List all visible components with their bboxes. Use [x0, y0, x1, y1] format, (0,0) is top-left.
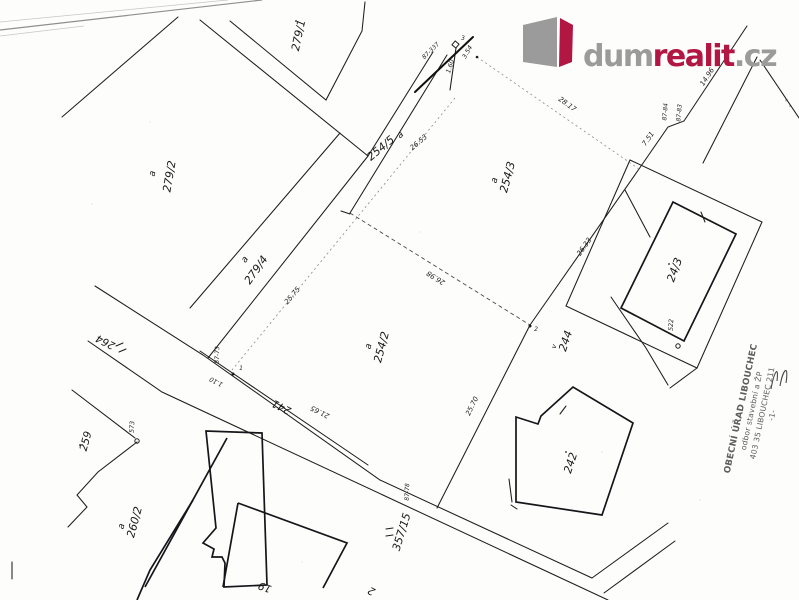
parcel-boundaries: [12, 2, 799, 593]
parcel-label-357-15: 357/15: [390, 512, 414, 553]
logo-wordmark: dumrealit.cz: [583, 39, 777, 74]
survey-point-87-83: 87-83: [675, 104, 684, 122]
parcel-label-279-2: 279/2: [160, 160, 178, 193]
measurement-21-65: 21.65: [309, 403, 331, 419]
parcel-label-279-1: 279/1: [289, 18, 308, 52]
parcel-label-264: 264: [94, 332, 117, 352]
survey-point-87-73: 87-73: [214, 346, 222, 364]
land-use-marker: a: [395, 130, 406, 141]
point-number-1: 1: [239, 365, 243, 372]
parcel-label-260-2: 260/2: [124, 505, 145, 539]
boundary-tick: [560, 406, 566, 414]
survey-dot: [232, 373, 235, 376]
boundary-tick: [511, 505, 517, 509]
measurement-25-70: 25.70: [464, 395, 480, 417]
boundary-tick: [341, 211, 350, 214]
logo-text-dum: dum: [583, 39, 653, 74]
roads: [88, 286, 608, 600]
measurement-26-98: 26.98: [425, 269, 447, 287]
measurement-1-10: 1.10: [208, 375, 224, 388]
survey-square-marker: [452, 41, 459, 48]
survey-circle-522: [676, 344, 680, 348]
point-label-573: 573: [129, 421, 137, 433]
survey-dot: [476, 56, 479, 59]
parcel-label-241: 241: [270, 397, 293, 417]
building-label-2: 2: [366, 584, 378, 598]
land-use-marker: a: [364, 343, 375, 351]
measure-lines: [232, 57, 639, 370]
parcel-label-254-2: 254/2: [371, 330, 392, 364]
cadastral-map: 279/1 a 279/2 a 279/4 254/5 a a 254/3 a …: [0, 0, 799, 600]
parcel-label-244: 244: [556, 329, 575, 353]
logo-building-icon-side: [559, 18, 573, 67]
land-use-marker: a: [148, 170, 159, 177]
cadastral-map-page: 279/1 a 279/2 a 279/4 254/5 a a 254/3 a …: [0, 0, 799, 600]
survey-point-87-337: 87-337: [421, 41, 441, 61]
logo-text-realit: realit: [653, 39, 735, 74]
brand-logo: dumrealit.cz: [523, 17, 777, 74]
parcel-label-254-5: 254/5: [364, 133, 397, 163]
buildings: [137, 202, 736, 600]
point-number-3: 3: [461, 35, 465, 42]
building-label-24-3: 24/3: [664, 256, 685, 284]
survey-point-87-78: 87-78: [404, 483, 412, 501]
measurement-28-17: 28.17: [557, 95, 578, 114]
measurement-7-51: 7.51: [641, 130, 656, 147]
logo-building-icon: [523, 17, 557, 67]
building-label-19: 19: [256, 579, 273, 595]
parcel-label-259: 259: [78, 430, 95, 453]
measurement-26-53: 26.53: [408, 133, 428, 152]
stamp-line-4: -1-: [767, 409, 778, 422]
point-number-2: 2: [534, 326, 538, 333]
survey-dot: [529, 325, 532, 328]
survey-markers: [79, 20, 705, 536]
survey-point-87-84: 87-84: [661, 103, 670, 121]
parallel-symbol: [116, 343, 126, 352]
parcel-label-254-3: 254/3: [497, 160, 518, 194]
parallel-symbol: [386, 528, 393, 536]
logo-text-cz: .cz: [734, 39, 777, 74]
point-label-522: 522: [668, 319, 675, 331]
office-stamp: OBECNÍ ÚŘAD LIBOUCHEC odbor stavební a Ž…: [721, 343, 791, 481]
building-label-242: 242: [561, 451, 580, 475]
land-use-marker: a: [240, 255, 251, 265]
measurement-26-33: 26.33: [575, 236, 593, 257]
